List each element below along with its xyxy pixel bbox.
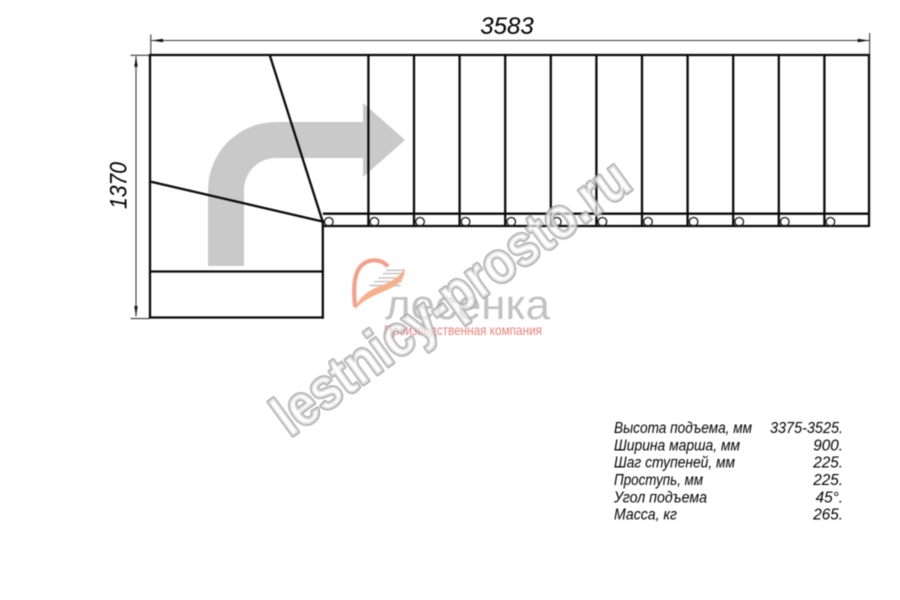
svg-text:3583: 3583 <box>480 13 534 40</box>
svg-text:1370: 1370 <box>106 161 133 209</box>
svg-text:225.: 225. <box>812 455 843 472</box>
svg-text:Масса, кг: Масса, кг <box>614 507 677 524</box>
svg-text:45°.: 45°. <box>816 489 843 506</box>
svg-text:Высота подъема, мм: Высота подъема, мм <box>614 420 752 437</box>
svg-text:Шаг ступеней, мм: Шаг ступеней, мм <box>614 455 735 472</box>
svg-text:225.: 225. <box>812 472 843 489</box>
svg-text:Угол подъема: Угол подъема <box>613 489 707 506</box>
svg-text:265.: 265. <box>812 507 843 524</box>
svg-text:900.: 900. <box>813 437 843 454</box>
svg-text:Ширина марша, мм: Ширина марша, мм <box>614 437 740 454</box>
svg-text:Проступь, мм: Проступь, мм <box>614 472 703 489</box>
svg-text:3375-3525.: 3375-3525. <box>770 420 843 437</box>
